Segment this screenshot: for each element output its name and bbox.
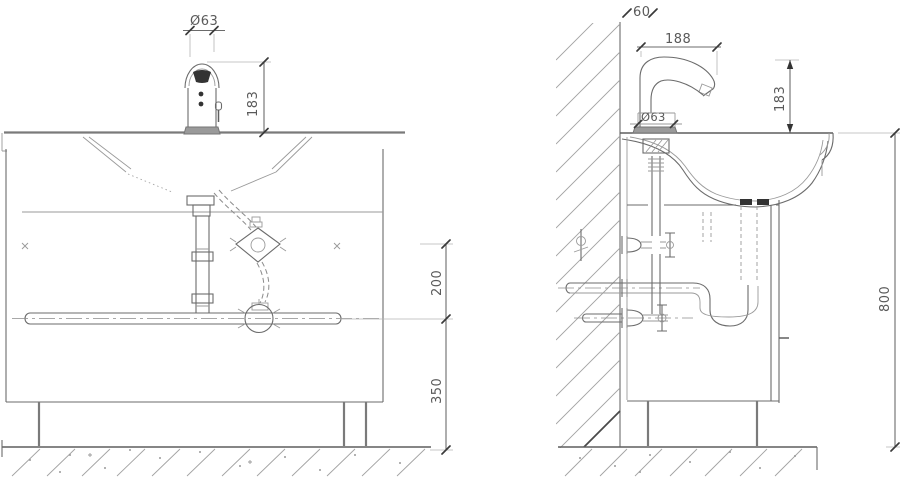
floor-side (558, 447, 817, 476)
dim-spout-reach: 188 (637, 32, 721, 75)
dim-label-faucet-height-front: 183 (246, 91, 261, 117)
pipe-valve (238, 299, 280, 333)
dim-label-faucet-diameter-front: Ø63 (190, 14, 218, 29)
drain-assembly-front (187, 196, 214, 313)
flex-hose-front (214, 190, 269, 310)
concrete-specks (29, 449, 401, 473)
dim-label-spout-reach: 188 (665, 32, 691, 47)
dim-label-base-diameter-side: Ø63 (641, 110, 666, 124)
wall-anchor-symbol (574, 229, 588, 261)
control-valve-front (230, 228, 286, 262)
installation-drawing: Ø63 183 200 350 60 (0, 0, 900, 478)
legs-front (39, 402, 366, 446)
counter-front (2, 133, 405, 152)
sensor-dot (199, 92, 204, 97)
front-view: Ø63 183 200 350 (2, 14, 453, 476)
shutoff-valve-upper (622, 233, 675, 257)
side-view: 60 Ø63 188 183 (556, 0, 900, 476)
cabinet-side (627, 137, 789, 446)
dim-label-faucet-height-side: 183 (773, 86, 788, 112)
dim-faucet-height-front: 183 (207, 58, 271, 137)
dim-label-supply-height: 350 (430, 378, 445, 404)
concrete-specks (579, 451, 796, 473)
sensor-dot (199, 102, 204, 107)
faucet-front (184, 64, 222, 134)
dim-supply-front: 200 350 (340, 240, 453, 454)
dim-faucet-height-side: 183 (773, 60, 799, 133)
dim-wall-offset: 60 (623, 5, 657, 20)
sensor-window (193, 70, 211, 83)
dim-rim-height: 800 (838, 129, 900, 451)
dim-faucet-diameter-front: Ø63 (183, 14, 225, 57)
wall-section (556, 0, 620, 452)
basin-side (622, 133, 833, 280)
angle-valve-side (574, 305, 693, 331)
dim-label-wall-offset: 60 (633, 5, 651, 20)
dim-label-supply-offset: 200 (430, 270, 445, 296)
basin-front (83, 137, 312, 192)
faucet-base-plate (184, 127, 220, 134)
installation-drawing-page: Ø63 183 200 350 60 (0, 0, 900, 478)
cabinet-front (6, 149, 383, 402)
dim-label-rim-height: 800 (878, 286, 893, 312)
